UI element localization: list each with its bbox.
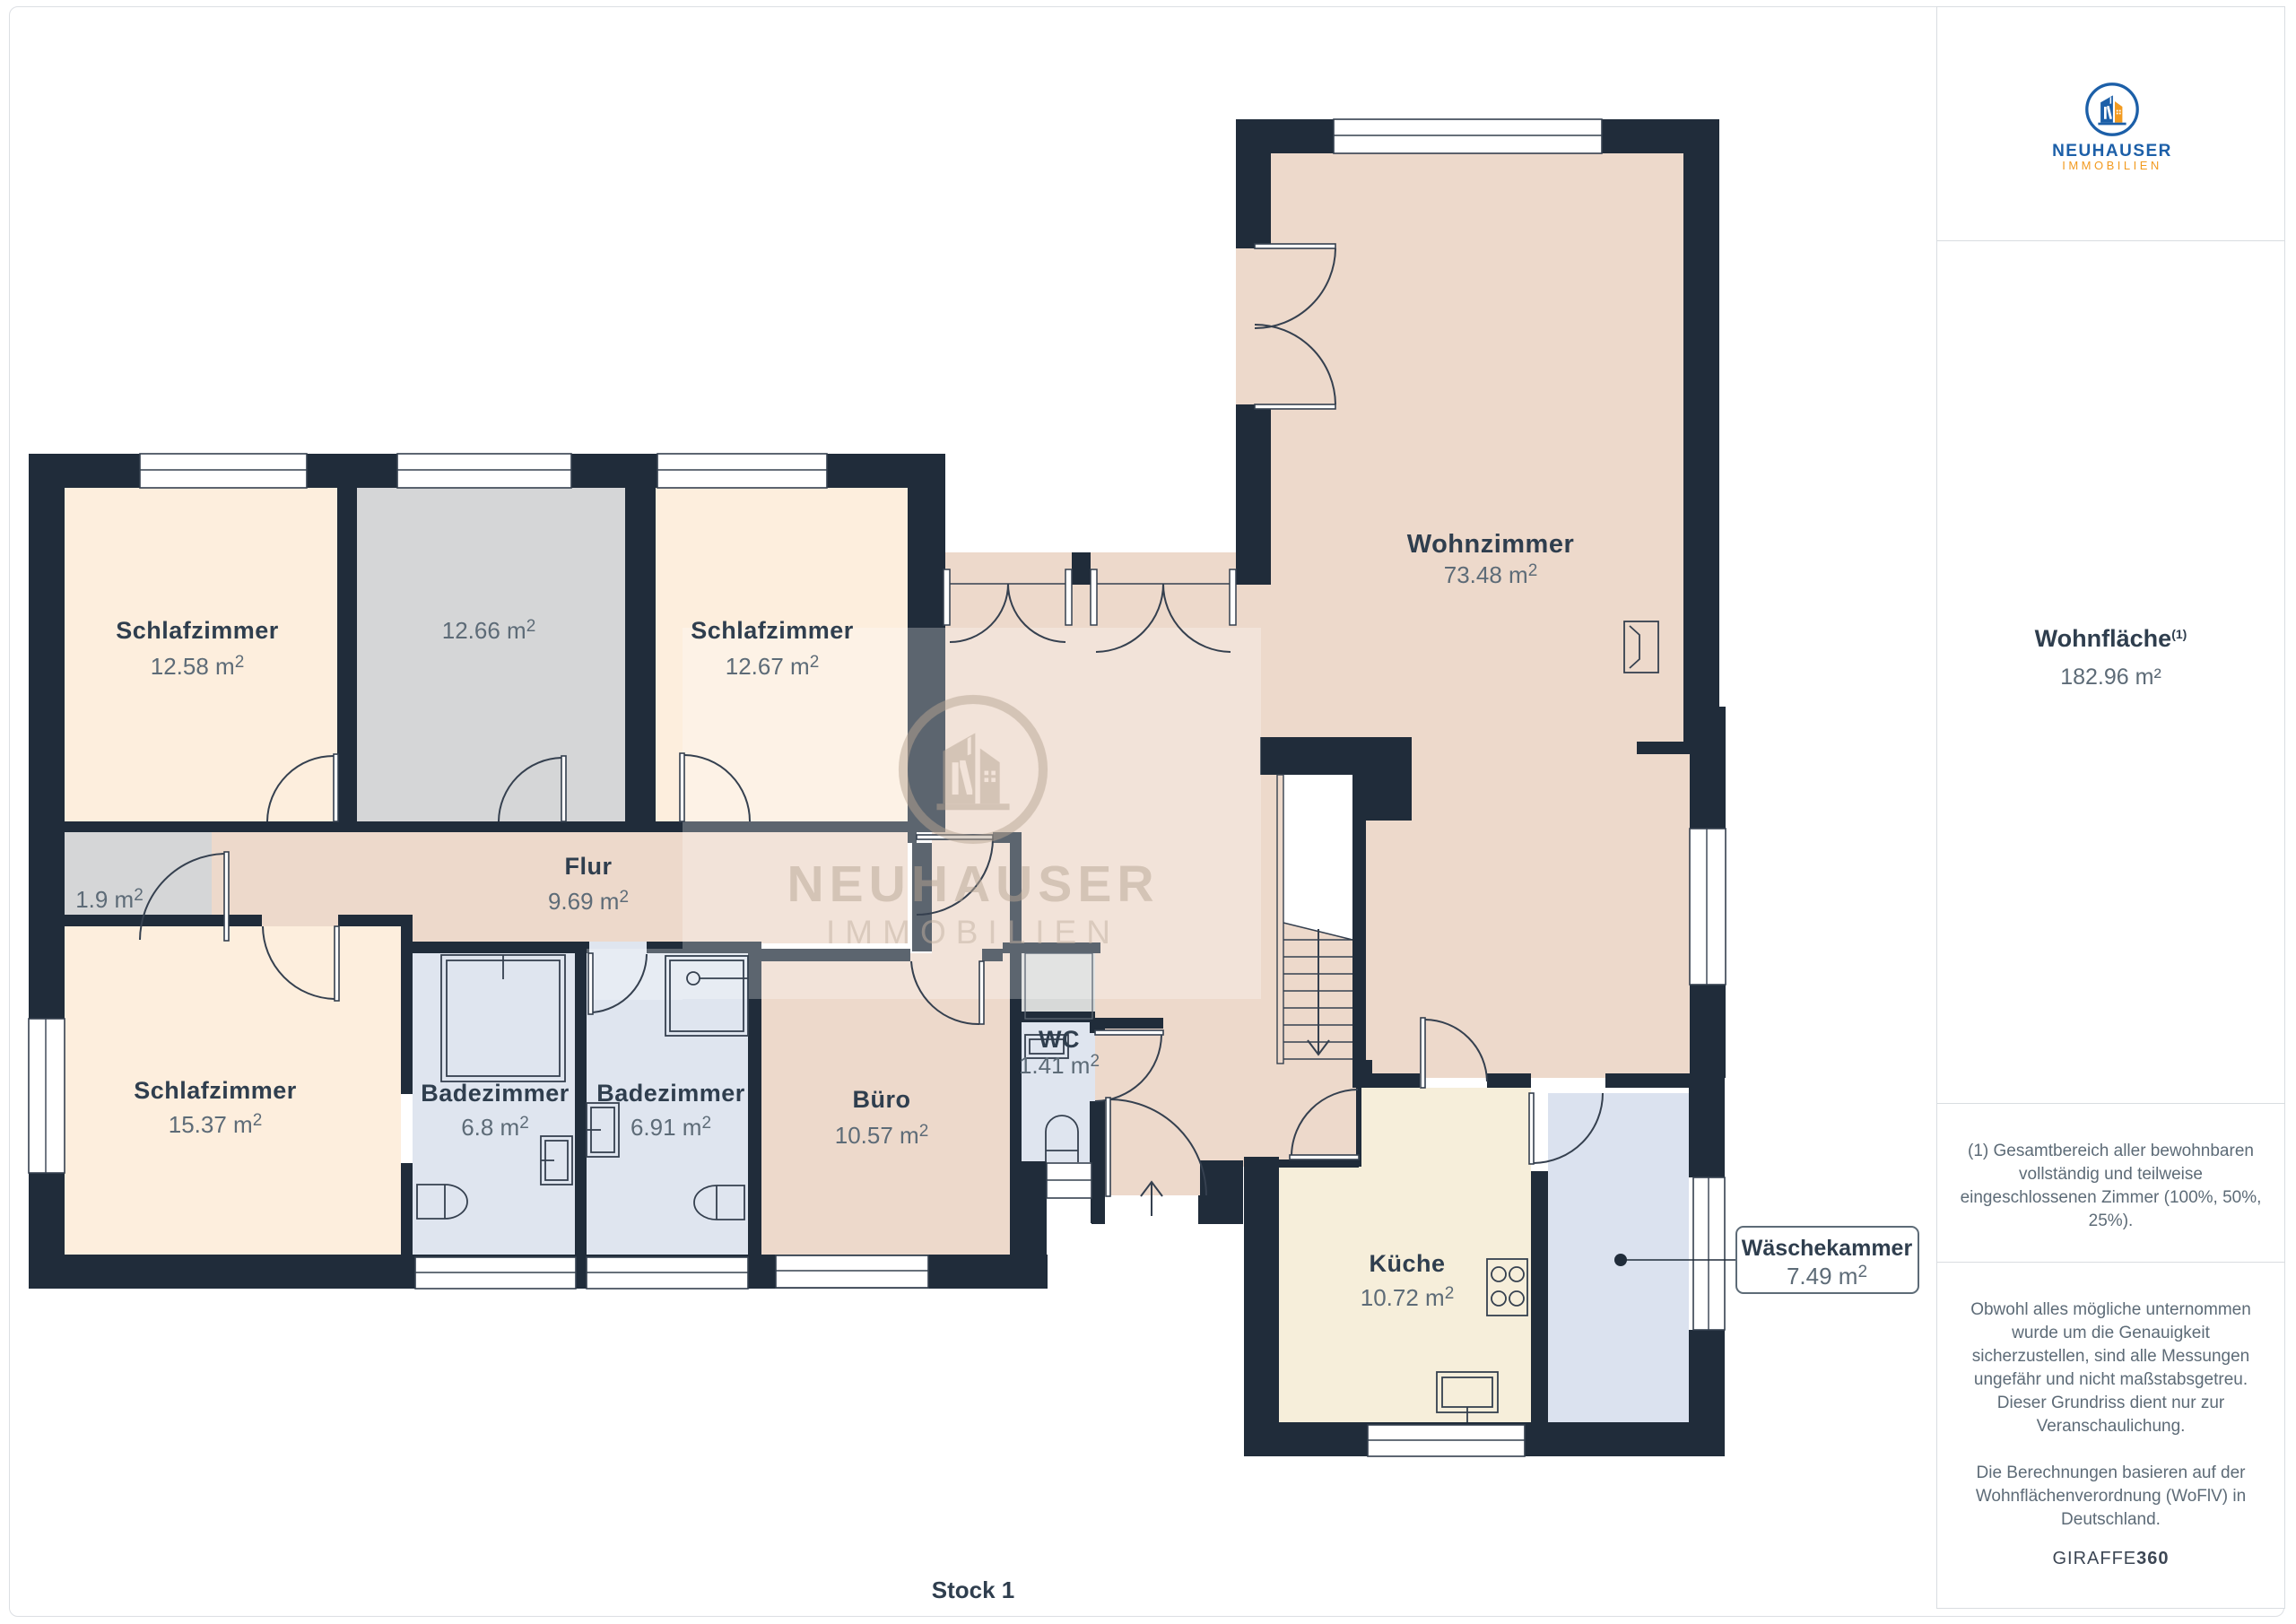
- svg-text:Küche: Küche: [1369, 1250, 1445, 1277]
- svg-text:Schlafzimmer: Schlafzimmer: [691, 617, 854, 644]
- svg-text:12.58 m2: 12.58 m2: [151, 653, 245, 680]
- svg-text:Stock 1: Stock 1: [932, 1576, 1015, 1603]
- svg-text:WC: WC: [1039, 1026, 1080, 1053]
- svg-text:12.66 m2: 12.66 m2: [442, 617, 536, 644]
- svg-text:1.9 m2: 1.9 m2: [75, 886, 143, 913]
- svg-text:Badezimmer: Badezimmer: [596, 1080, 745, 1107]
- svg-text:9.69 m2: 9.69 m2: [548, 888, 629, 915]
- svg-text:10.72 m2: 10.72 m2: [1361, 1284, 1455, 1311]
- svg-text:IMMOBILIEN: IMMOBILIEN: [826, 914, 1120, 951]
- svg-text:6.8 m2: 6.8 m2: [461, 1114, 529, 1141]
- svg-text:Flur: Flur: [565, 853, 613, 880]
- svg-text:Schlafzimmer: Schlafzimmer: [116, 617, 279, 644]
- svg-text:IMMOBILIEN: IMMOBILIEN: [2062, 159, 2162, 172]
- svg-text:Büro: Büro: [853, 1086, 911, 1113]
- svg-text:Wäschekammer: Wäschekammer: [1742, 1236, 1913, 1261]
- svg-text:1.41 m2: 1.41 m2: [1019, 1052, 1100, 1079]
- svg-text:Schlafzimmer: Schlafzimmer: [134, 1077, 297, 1104]
- svg-text:15.37 m2: 15.37 m2: [169, 1111, 263, 1138]
- svg-text:73.48 m2: 73.48 m2: [1444, 561, 1538, 588]
- svg-text:10.57 m2: 10.57 m2: [835, 1122, 929, 1149]
- svg-text:12.67 m2: 12.67 m2: [726, 653, 820, 680]
- svg-text:NEUHAUSER: NEUHAUSER: [2052, 142, 2172, 161]
- svg-text:6.91 m2: 6.91 m2: [631, 1114, 711, 1141]
- svg-text:NEUHAUSER: NEUHAUSER: [787, 855, 1159, 913]
- svg-text:7.49 m2: 7.49 m2: [1787, 1263, 1867, 1290]
- svg-text:Wohnzimmer: Wohnzimmer: [1407, 530, 1575, 559]
- svg-text:Badezimmer: Badezimmer: [421, 1080, 570, 1107]
